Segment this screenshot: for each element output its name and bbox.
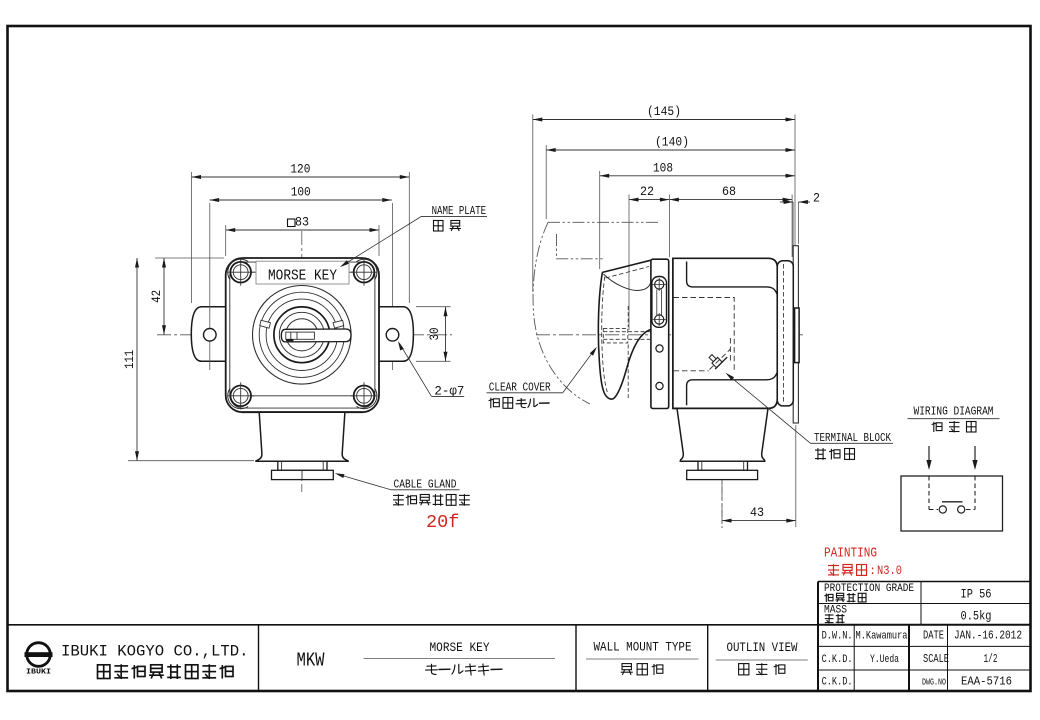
svg-text:100: 100 [291, 186, 311, 200]
svg-text:MKW: MKW [297, 650, 325, 672]
svg-text:C.K.D.: C.K.D. [822, 654, 853, 666]
svg-text:IP 56: IP 56 [961, 588, 992, 602]
svg-text:NAME PLATE: NAME PLATE [432, 205, 487, 218]
svg-text::: : [869, 564, 876, 578]
svg-text:43: 43 [750, 506, 764, 520]
svg-text:0.5kg: 0.5kg [961, 610, 992, 624]
svg-text:111: 111 [123, 350, 137, 369]
svg-text:(145): (145) [647, 105, 681, 119]
svg-text:68: 68 [722, 185, 736, 199]
svg-text:2: 2 [813, 192, 820, 206]
svg-text:OUTLIN VIEW: OUTLIN VIEW [727, 641, 798, 655]
svg-text:MORSE KEY: MORSE KEY [268, 269, 337, 285]
svg-text:SCALE: SCALE [923, 652, 949, 666]
svg-text:108: 108 [653, 161, 673, 175]
svg-text:D.W.N.: D.W.N. [822, 631, 853, 643]
svg-text:(140): (140) [655, 136, 689, 150]
svg-text:WIRING DIAGRAM: WIRING DIAGRAM [914, 404, 994, 418]
svg-text:PAINTING: PAINTING [824, 547, 877, 562]
svg-text:83: 83 [295, 216, 309, 230]
svg-text:22: 22 [640, 185, 654, 199]
svg-text:C.K.D.: C.K.D. [822, 677, 853, 689]
svg-text:DATE: DATE [923, 629, 944, 643]
svg-text:JAN.-16.2012: JAN.-16.2012 [954, 630, 1022, 643]
svg-text:Y.Ueda: Y.Ueda [870, 654, 899, 666]
svg-text:N3.0: N3.0 [877, 564, 902, 578]
svg-text:42: 42 [150, 290, 164, 303]
svg-text:20f: 20f [426, 512, 459, 533]
svg-text:IBUKI KOGYO CO.,LTD.: IBUKI KOGYO CO.,LTD. [61, 643, 249, 661]
svg-text:1/2: 1/2 [984, 652, 998, 666]
svg-text:EAA-5716: EAA-5716 [961, 675, 1012, 689]
svg-text:120: 120 [290, 163, 310, 177]
svg-text:IBUKI: IBUKI [26, 669, 51, 677]
svg-text:WALL MOUNT TYPE: WALL MOUNT TYPE [594, 641, 692, 655]
svg-text:DWG.NO: DWG.NO [922, 677, 946, 688]
svg-text:M.Kawamura: M.Kawamura [856, 631, 908, 643]
svg-text:MORSE KEY: MORSE KEY [430, 641, 490, 655]
svg-text:30: 30 [428, 328, 442, 341]
